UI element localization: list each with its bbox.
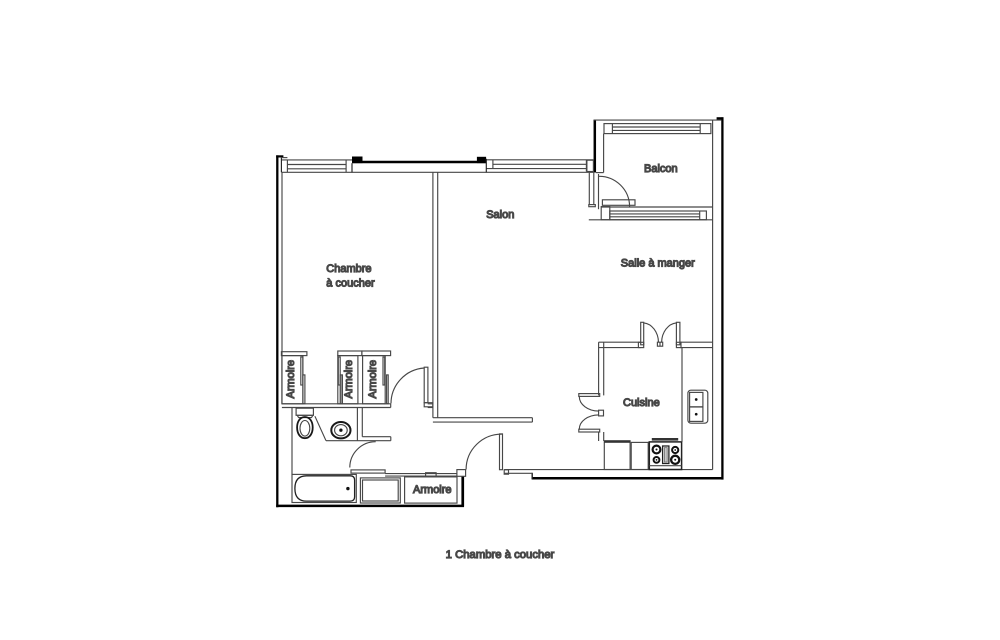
svg-text:Armoire: Armoire bbox=[285, 360, 297, 399]
svg-text:à coucher: à coucher bbox=[326, 277, 375, 289]
svg-text:Armoire: Armoire bbox=[413, 484, 452, 496]
svg-text:1 Chambre à coucher: 1 Chambre à coucher bbox=[446, 549, 555, 561]
svg-text:Salle à manger: Salle à manger bbox=[621, 258, 695, 270]
svg-text:Cuisine: Cuisine bbox=[623, 397, 660, 409]
svg-text:Salon: Salon bbox=[486, 209, 514, 221]
svg-text:Chambre: Chambre bbox=[326, 263, 371, 275]
svg-text:Armoire: Armoire bbox=[367, 360, 379, 399]
svg-text:Armoire: Armoire bbox=[343, 360, 355, 399]
svg-text:Balcon: Balcon bbox=[644, 163, 678, 175]
